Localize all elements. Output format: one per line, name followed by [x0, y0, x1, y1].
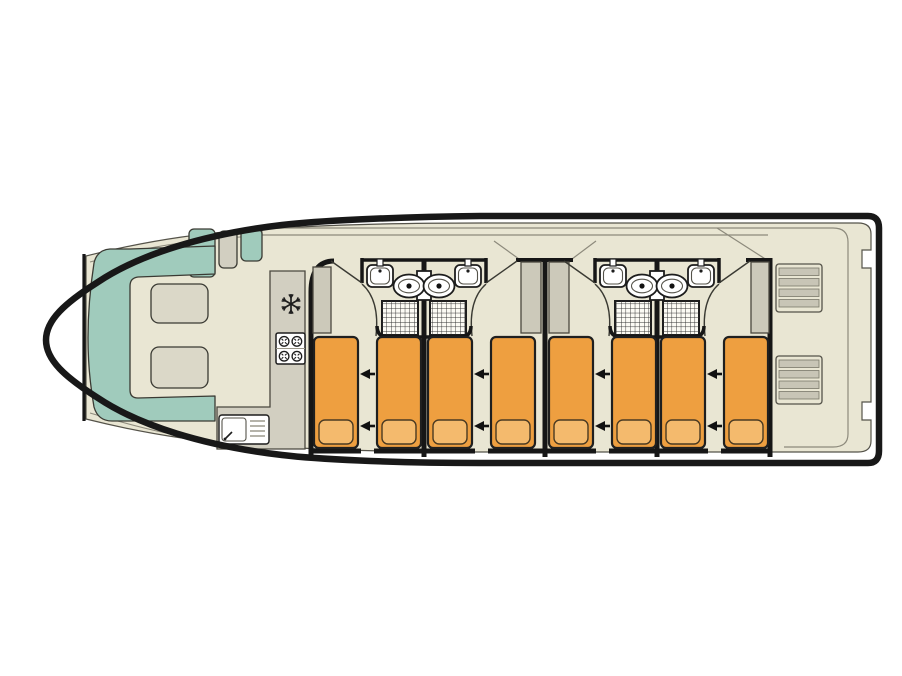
wardrobe	[751, 262, 769, 333]
saloon-table	[151, 284, 208, 323]
washbasin-faucet	[465, 259, 471, 266]
stair-tread	[779, 289, 819, 297]
wardrobe	[521, 262, 541, 333]
stair-tread	[779, 268, 819, 276]
toilet-bowl	[669, 283, 674, 288]
stove-burner	[292, 337, 302, 347]
stair-tread	[779, 381, 819, 389]
stove-burner	[279, 337, 289, 347]
shower-tray	[615, 301, 651, 335]
bed-pillow	[319, 420, 353, 444]
washbasin-faucet	[699, 269, 702, 272]
stove-burner	[279, 351, 289, 361]
washbasin-faucet	[610, 259, 616, 266]
bed-pillow	[433, 420, 467, 444]
bed-pillow	[666, 420, 700, 444]
stair-tread	[779, 371, 819, 379]
bed-pillow	[496, 420, 530, 444]
galley-sink-unit	[219, 415, 269, 444]
galley-sink-faucet	[224, 438, 227, 441]
wardrobe	[549, 262, 569, 333]
saloon-table	[151, 347, 208, 388]
bed-pillow	[382, 420, 416, 444]
stove-burner	[292, 351, 302, 361]
bow-seat	[241, 229, 262, 261]
washbasin-faucet	[698, 259, 704, 266]
stair-tread	[779, 279, 819, 287]
washbasin-faucet	[466, 269, 469, 272]
deck-plan-svg	[0, 0, 902, 676]
stair-tread	[779, 360, 819, 368]
stair-tread	[779, 392, 819, 400]
bed-pillow	[554, 420, 588, 444]
bed-pillow	[729, 420, 763, 444]
wardrobe	[313, 267, 331, 333]
toilet-bowl	[406, 283, 411, 288]
bed-pillow	[617, 420, 651, 444]
stair-tread	[779, 300, 819, 308]
shower-tray	[382, 301, 418, 335]
washbasin-faucet	[378, 269, 381, 272]
washbasin-faucet	[611, 269, 614, 272]
toilet-bowl	[639, 283, 644, 288]
boat-floor-plan	[0, 0, 902, 676]
shower-tray	[430, 301, 466, 335]
toilet-bowl	[436, 283, 441, 288]
shower-tray	[663, 301, 699, 335]
washbasin-faucet	[377, 259, 383, 266]
